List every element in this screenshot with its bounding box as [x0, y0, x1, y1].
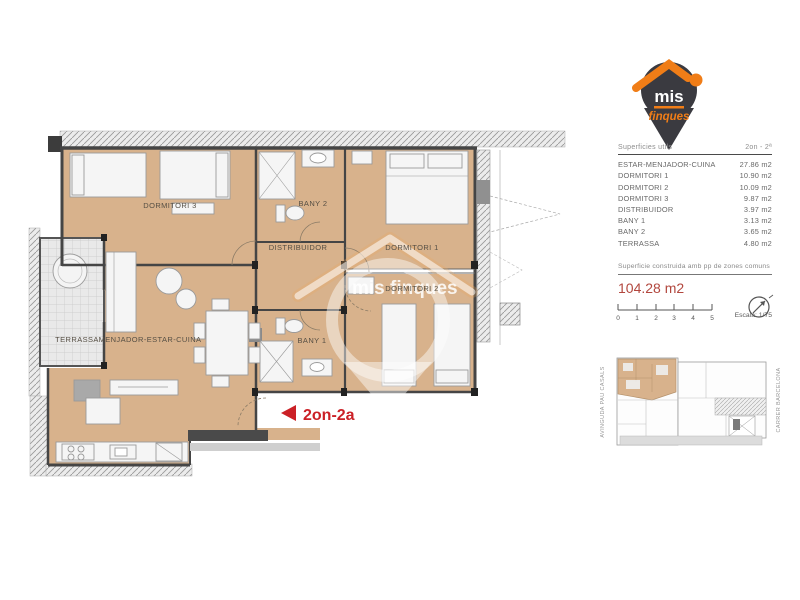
sofa — [106, 252, 136, 332]
floorplan-flyer: mis finques DORMITORI 3 BANY 2 DORMITORI… — [0, 0, 800, 600]
pouf — [176, 289, 196, 309]
row-label: DISTRIBUIDOR — [618, 205, 673, 214]
row-value: 3.97 m2 — [744, 205, 772, 214]
left-arrow-icon — [281, 405, 296, 421]
table-row: DORMITORI 2 10.09 m2 — [618, 180, 772, 191]
logo-text-finques: finques — [649, 111, 690, 123]
room-label: DISTRIBUIDOR — [269, 243, 328, 252]
table-row: DORMITORI 3 9.87 m2 — [618, 192, 772, 203]
row-value: 27.86 m2 — [740, 160, 772, 169]
areas-table: Superficies utils 2on - 2ª ESTAR-MENJADO… — [618, 144, 772, 248]
bed — [160, 151, 230, 199]
stair-core — [729, 416, 755, 436]
entry-closet — [86, 398, 120, 424]
room-terrassa — [40, 238, 104, 366]
row-value: 9.87 m2 — [744, 194, 772, 203]
room-label: BANY 1 — [298, 336, 327, 345]
room-label: DORMITORI 3 — [143, 201, 196, 210]
compass-icon — [742, 292, 776, 326]
room-label: TERRASSA — [55, 335, 99, 344]
row-label: BANY 2 — [618, 227, 645, 236]
row-label: ESTAR-MENJADOR-CUINA — [618, 160, 715, 169]
bed — [70, 153, 146, 197]
row-label: DORMITORI 3 — [618, 194, 669, 203]
street-label-right: CARRER BARCELONA — [776, 367, 782, 432]
scale-tick: 0 — [616, 315, 620, 322]
row-value: 10.90 m2 — [740, 171, 772, 180]
sink — [302, 359, 332, 376]
building-footprint — [617, 358, 766, 445]
row-value: 3.65 m2 — [744, 227, 772, 236]
unit-label: 2on-2a — [303, 407, 355, 424]
kitchen-counter — [56, 442, 188, 462]
table-row: DORMITORI 1 10.90 m2 — [618, 169, 772, 180]
row-label: BANY 1 — [618, 216, 645, 225]
scale-tick: 1 — [635, 315, 639, 322]
scale-ratio-label: Escala: 1/75 — [700, 312, 772, 319]
roof-dot-icon — [690, 74, 703, 87]
toilet — [276, 318, 303, 334]
scale-tick: 3 — [672, 315, 676, 322]
built-area-label: Superficie construida amb pp de zones co… — [618, 263, 772, 275]
row-value: 3.13 m2 — [744, 216, 772, 225]
built-area-value: 104.28 m2 — [618, 280, 684, 296]
row-label: DORMITORI 1 — [618, 171, 669, 180]
table-row: DISTRIBUIDOR 3.97 m2 — [618, 203, 772, 214]
row-value: 10.09 m2 — [740, 183, 772, 192]
bed — [386, 151, 468, 224]
room-label: DORMITORI 2 — [385, 284, 438, 293]
row-value: 4.80 m2 — [744, 239, 772, 248]
table-row: TERRASSA 4.80 m2 — [618, 236, 772, 247]
company-logo: mis finques — [626, 56, 712, 154]
table-row: BANY 1 3.13 m2 — [618, 214, 772, 225]
row-label: DORMITORI 2 — [618, 183, 669, 192]
room-label: BANY 2 — [299, 199, 328, 208]
unit-tag: 2on-2a — [281, 405, 355, 424]
areas-table-header: Superficies utils 2on - 2ª — [618, 144, 772, 155]
scale-tick: 4 — [691, 315, 695, 322]
site-plan: AVINGUDA PAU CASALS C — [596, 352, 788, 460]
tv-bench — [110, 380, 178, 395]
logo-text-mis: mis — [654, 87, 683, 106]
row-label: TERRASSA — [618, 239, 659, 248]
shower — [260, 341, 293, 382]
sink — [302, 150, 334, 167]
table-header-left: Superficies utils — [618, 144, 672, 151]
scale-bar: 0 1 2 3 4 5 — [614, 298, 724, 324]
pouf — [156, 268, 182, 294]
scale-tick: 2 — [654, 315, 658, 322]
facade-windows — [477, 150, 560, 345]
nightstand — [352, 151, 372, 164]
room-label: DORMITORI 1 — [385, 243, 438, 252]
table-row: BANY 2 3.65 m2 — [618, 225, 772, 236]
table-header-right: 2on - 2ª — [745, 144, 772, 151]
room-label: MENJADOR-ESTAR-CUINA — [99, 335, 202, 344]
street-label-left: AVINGUDA PAU CASALS — [600, 366, 606, 437]
table-row: ESTAR-MENJADOR-CUINA 27.86 m2 — [618, 158, 772, 169]
shower — [259, 152, 295, 199]
